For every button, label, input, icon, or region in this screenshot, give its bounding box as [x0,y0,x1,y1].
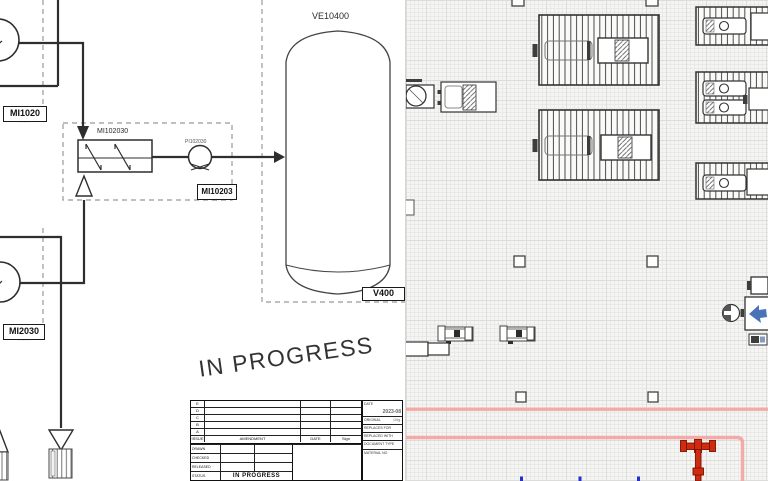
replaces-for-field: REPLACES FOR [363,425,402,433]
rev-letter: B [191,422,205,428]
released-row: RELEASED [191,462,292,471]
line-mi2030-to-hx [17,200,84,283]
original-field: ORIGINAL Orig. [363,417,402,425]
pump-casing-unit [438,82,497,112]
tag-mi2030: MI2030 ····· [3,324,45,340]
material-no-field: MATERIAL NO [363,450,402,460]
titleblock-info-column: DATE 2023-08 ORIGINAL Orig. REPLACES FOR… [362,400,403,481]
drawn-row: DRAWN [191,444,292,453]
equipment-circles [0,19,20,302]
marker-square [516,392,526,402]
arrow-down-connector [49,430,73,450]
checked-label: CHECKED [191,454,221,462]
arrow-up-into-hx [76,176,92,196]
mi2030-equipment-circle [0,262,20,302]
tag-v400-sub: ····· [363,299,404,304]
tag-mi1020-sub: ····· [4,120,46,125]
revision-table: E D C B A [190,400,362,444]
status-value: IN PROGRESS [221,472,292,480]
revision-row: C [191,415,361,422]
vessel-symbol [286,31,390,294]
checked-row: CHECKED [191,453,292,462]
revision-row: E [191,401,361,408]
marker-square [514,256,525,267]
tag-mi10203-sub: ····· [198,198,236,203]
revision-row: B [191,422,361,429]
tag-mi10203-label: MI10203 [201,187,232,196]
right-edge-items [723,277,768,345]
status-label: STATUS [191,472,221,480]
date-header: DATE [301,436,331,442]
tag-v400: V400 ····· [362,287,405,301]
finned-equipment-b [533,110,660,180]
approval-table: DRAWN CHECKED RELEASED STATUS IN PROGRES… [190,444,292,481]
tag-mi10203: MI10203 ····· [197,184,237,200]
rev-letter: A [191,429,205,435]
revision-row: D [191,408,361,415]
arrow-into-vessel [274,151,285,163]
status-row: STATUS IN PROGRESS [191,471,292,480]
screen: MI1020 ····· MI2030 ····· MI10203 ····· … [0,0,768,481]
tag-mi2030-label: MI2030 [9,326,39,336]
pump-label: PI102030 [185,139,206,145]
rev-letter: C [191,415,205,421]
revision-row: A [191,429,361,436]
small-cabinet [751,277,768,294]
revision-header-row: ISSUE AMENDMENT DATE Sign [191,436,361,442]
cad-layout-pane[interactable]: ··· ··· [405,0,768,481]
tag-v400-label: V400 [373,288,394,298]
title-block: E D C B A [190,400,403,481]
rev-letter: D [191,408,205,414]
issue-header: ISSUE [191,436,205,442]
motor-unit [406,79,434,108]
hx-label: MI102030 [97,128,128,135]
rev-letter: E [191,401,205,407]
marker-square [647,256,658,267]
arrow-up-connector-left [0,431,8,452]
tag-mi1020: MI1020 ····· [3,106,47,122]
marker-square [648,392,658,402]
red-pipe-tee [681,440,716,481]
tag-mi2030-sub: ····· [4,338,44,343]
released-label: RELEASED [191,463,221,471]
finned-equipment-a [533,15,660,85]
finned-equipment-f [696,72,768,123]
mi1020-equipment-circle [0,19,19,61]
offpage-connectors [0,449,72,480]
sign-header: Sign [331,436,361,442]
tag-mi1020-label: MI1020 [10,108,40,118]
marker-square [646,0,658,6]
pump-symbol [189,146,212,171]
pump-sublabel: ··· [515,345,519,350]
finned-equipment-e [696,7,768,45]
date-value: 2023-08 [383,409,401,415]
finned-equipment-g [696,163,768,199]
amendment-header: AMENDMENT [205,436,301,442]
date-field: DATE 2023-08 [363,401,402,417]
replaced-with-field: REPLACED WITH [363,433,402,441]
heat-exchanger-symbol [78,140,152,172]
blue-tick-marks [520,477,640,481]
drawn-label: DRAWN [191,445,221,453]
arrow-down-into-hx [77,126,89,140]
pump-sublabel: ··· [453,345,457,350]
vessel-label: VE10400 [312,11,349,21]
cad-linework-svg: ··· ··· [406,0,768,481]
marker-square [512,0,524,6]
document-type-field: DOCUMENT TYPE [363,441,402,450]
titleblock-empty-cell [292,444,362,481]
small-pump-2: ··· [500,326,535,350]
